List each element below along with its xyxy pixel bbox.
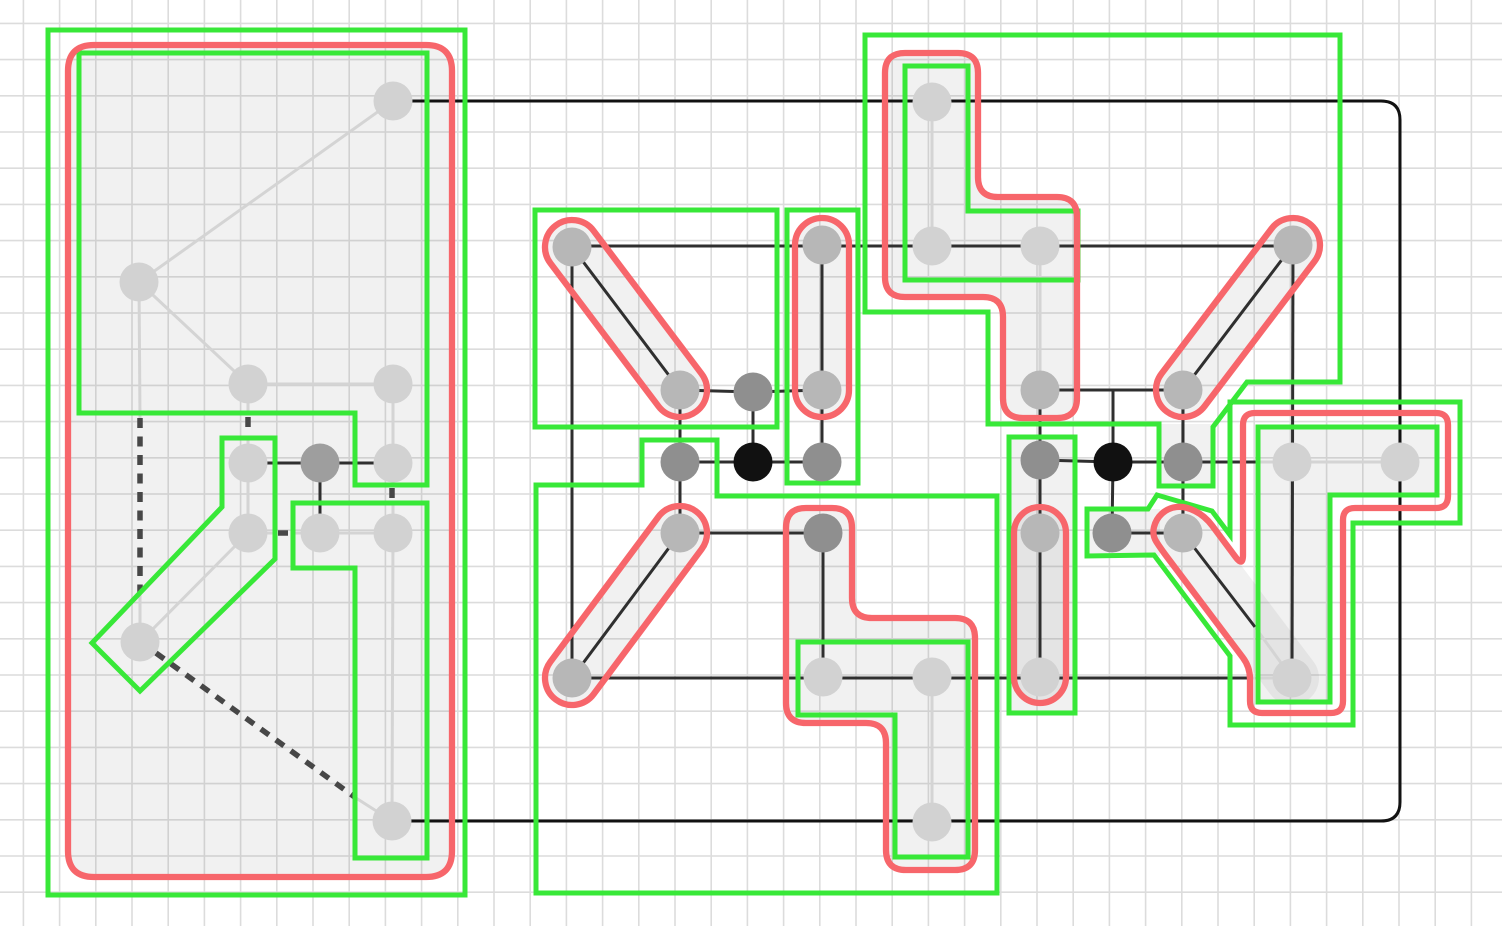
graph-node [374,82,413,121]
graph-edge [139,282,140,418]
graph-node [913,658,952,697]
graph-node [804,658,843,697]
graph-node [734,373,773,412]
graph-node [1273,443,1312,482]
graph-node [803,443,842,482]
graph-node [661,514,700,553]
graph-node [913,227,952,266]
graph-node [373,802,412,841]
hypergraph-svg [0,0,1502,926]
graph-edge [1183,245,1293,390]
graph-node [913,803,952,842]
graph-node [803,226,842,265]
graph-edge [572,533,680,678]
graph-node [553,228,592,267]
graph-node [229,365,268,404]
graph-node [1273,659,1312,698]
graph-node [1164,514,1203,553]
graph-node [1021,371,1060,410]
graph-node [301,444,340,483]
graph-node [229,444,268,483]
graph-node [1274,226,1313,265]
graph-node [121,623,160,662]
graph-node [1021,658,1060,697]
graph-node [374,365,413,404]
graph-node [1021,227,1060,266]
graph-node [374,444,413,483]
graph-node [803,371,842,410]
graph-node [553,659,592,698]
graph-node [1021,514,1060,553]
graph-node [661,443,700,482]
graph-node [734,443,773,482]
diagram-viewport [0,0,1502,926]
graph-node [301,514,340,553]
graph-node [1381,443,1420,482]
graph-node [804,514,843,553]
graph-node [1093,514,1132,553]
graph-node [1021,441,1060,480]
graph-edge [392,533,393,821]
graph-node [229,514,268,553]
graph-node [120,263,159,302]
graph-node [1164,371,1203,410]
graph-node [661,371,700,410]
graph-edge [572,247,680,390]
graph-node [374,514,413,553]
graph-node [913,83,952,122]
graph-node [1094,443,1133,482]
graph-node [1164,443,1203,482]
